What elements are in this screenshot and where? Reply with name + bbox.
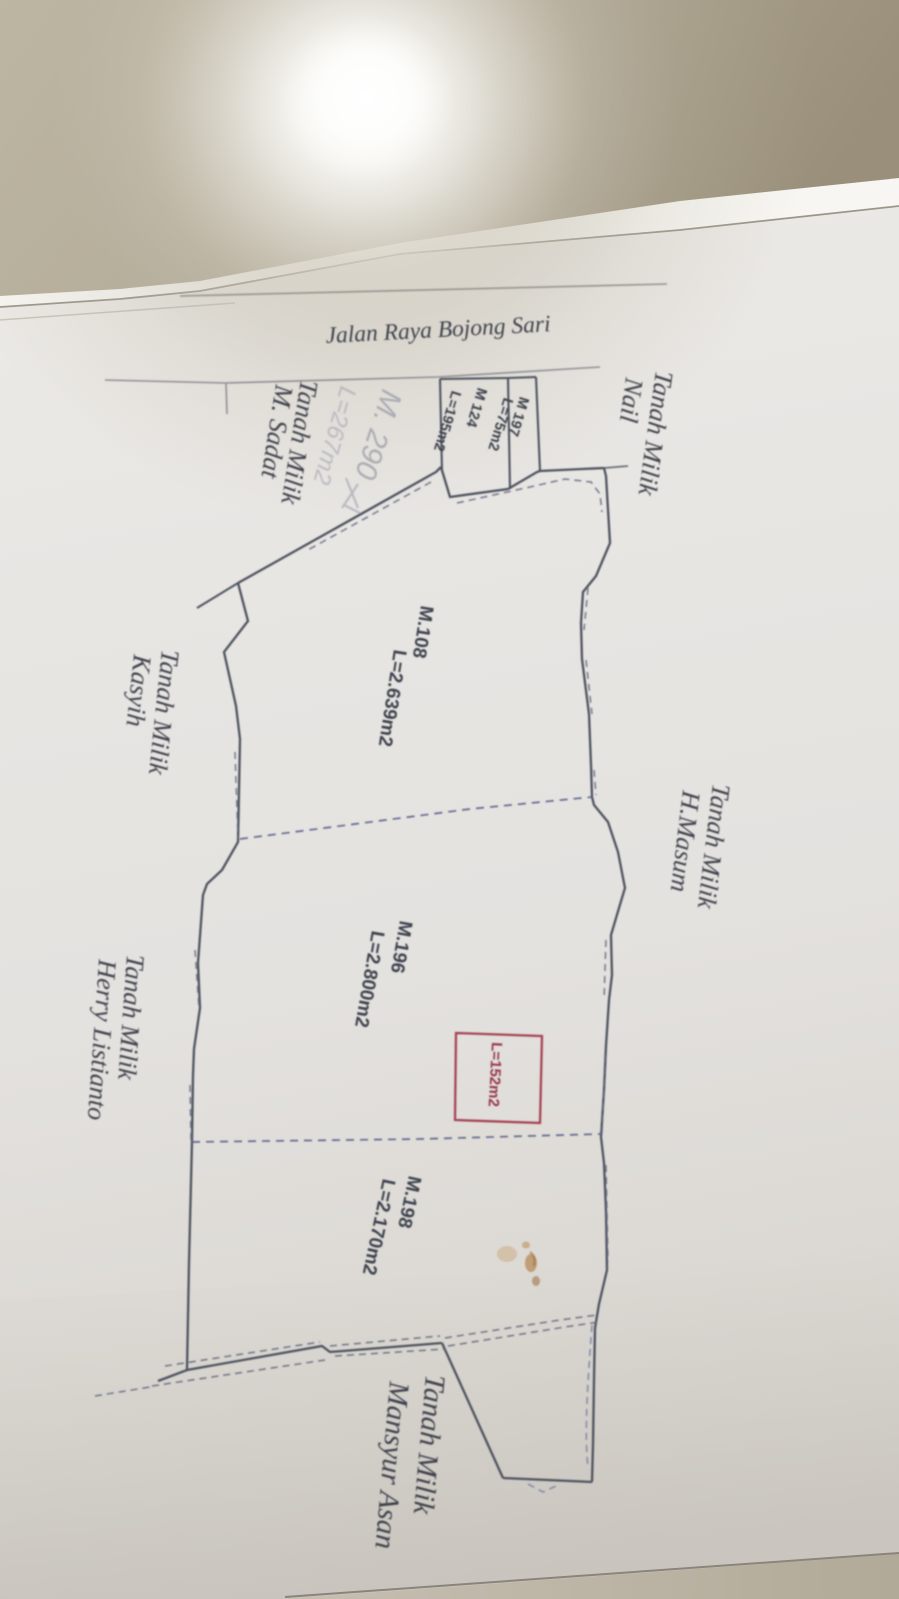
svg-text:L=152m2: L=152m2 — [485, 1042, 505, 1107]
